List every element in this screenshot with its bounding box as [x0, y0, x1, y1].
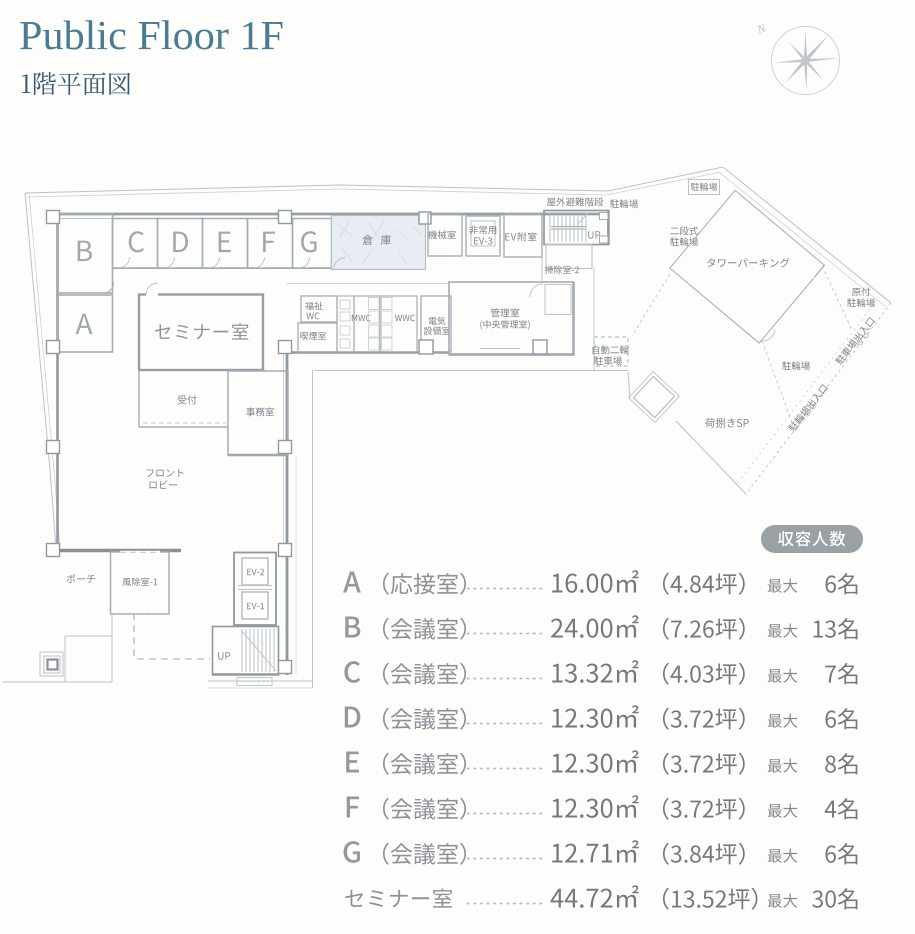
svg-text:Public Floor 1F: Public Floor 1F: [19, 12, 284, 58]
svg-text:N: N: [754, 21, 768, 38]
